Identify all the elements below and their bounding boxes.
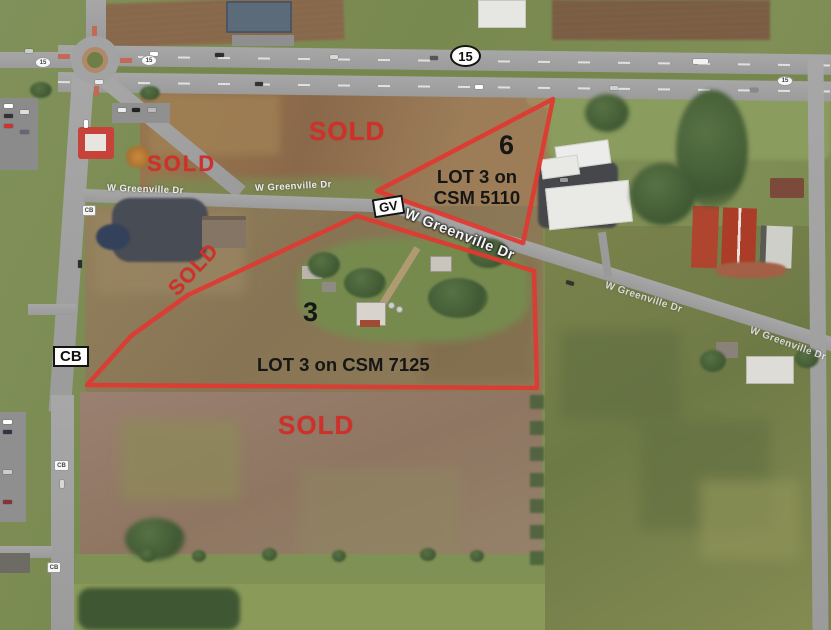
car <box>330 55 338 59</box>
truck <box>693 59 708 64</box>
tree-line-vertical <box>530 395 544 570</box>
splitter-island <box>92 26 97 36</box>
tree-row-dot <box>192 550 206 562</box>
car <box>60 480 64 488</box>
tree-cluster <box>428 278 488 318</box>
splitter-island <box>120 58 132 63</box>
road-west-stub-mid <box>28 304 76 315</box>
car <box>750 88 758 92</box>
shed <box>322 282 336 292</box>
car <box>475 85 483 89</box>
tree-row-dot <box>332 550 346 562</box>
car <box>4 114 13 118</box>
car <box>610 86 618 90</box>
restaurant-roof-center <box>85 134 106 151</box>
field-tilled-top-right <box>552 0 770 40</box>
car <box>25 49 33 53</box>
car <box>3 470 12 474</box>
mini-highway-15-shield: 15 <box>141 55 157 66</box>
car <box>430 56 438 60</box>
tree-cluster <box>140 86 160 100</box>
car <box>3 420 12 424</box>
parcel-6-csm-line1: LOT 3 on <box>421 166 533 187</box>
parcel-3-number: 3 <box>303 297 318 328</box>
car <box>3 430 12 434</box>
highway-15-shield: 15 <box>450 45 481 67</box>
building-bottom-left <box>0 553 30 573</box>
car <box>132 108 140 112</box>
road-cb-lower <box>51 395 74 630</box>
tree-row-dot <box>470 550 484 562</box>
car <box>148 108 156 112</box>
field-right-mottle3 <box>700 480 800 560</box>
tree-mass-bottom-left <box>78 588 240 630</box>
car <box>78 260 82 268</box>
barn-red-2 <box>721 207 757 268</box>
tree-row-dot <box>420 548 436 561</box>
parking-office <box>232 35 294 46</box>
silo <box>396 306 403 313</box>
splitter-island <box>58 54 70 59</box>
parking-lot-top-left <box>0 98 38 170</box>
car <box>255 82 263 86</box>
tree-row-dot <box>262 548 277 561</box>
office-building-blue <box>226 1 292 33</box>
barn-bottom-right <box>746 356 794 384</box>
barn-red-1 <box>691 206 719 269</box>
tree-cluster <box>30 82 52 98</box>
parking-bottom-left <box>0 412 26 522</box>
field-tilled-top <box>91 0 344 48</box>
mini-highway-15-shield: 15 <box>777 76 793 86</box>
silo <box>388 302 395 309</box>
car <box>215 53 224 57</box>
sold-label-bottom: SOLD <box>278 410 354 441</box>
tree-cluster <box>700 350 726 372</box>
barn-farm-red-wall <box>360 320 380 327</box>
field-south-green-patch2 <box>300 468 460 560</box>
car <box>20 110 29 114</box>
tree-cluster <box>630 163 696 225</box>
field-south-green-patch1 <box>120 420 240 500</box>
lane-dashes <box>58 55 831 66</box>
white-building-top <box>478 0 526 28</box>
car <box>3 500 12 504</box>
car <box>4 124 13 128</box>
mini-cb-shield: CB <box>54 460 69 471</box>
roundabout-island <box>87 52 103 68</box>
mini-cb-shield: CB <box>82 205 96 216</box>
cb-route-shield: CB <box>53 346 89 367</box>
parking-strip <box>112 103 170 123</box>
parcel-6-csm-line2: CSM 5110 <box>421 187 533 208</box>
car <box>95 80 103 84</box>
tree-cluster <box>308 252 340 278</box>
car <box>4 104 13 108</box>
farm-house <box>430 256 452 272</box>
dirt-yard-red <box>716 262 786 278</box>
pond <box>96 224 130 250</box>
splitter-island <box>94 86 99 96</box>
car <box>20 130 29 134</box>
car <box>84 120 88 128</box>
parcel-3-csm-label: LOT 3 on CSM 7125 <box>257 354 430 376</box>
field-right-mottle1 <box>560 330 680 420</box>
warehouse-white-c <box>545 180 633 231</box>
tree-cluster <box>585 94 629 132</box>
house-ne <box>770 178 804 198</box>
parcel-6-number: 6 <box>499 130 514 161</box>
mini-cb-shield: CB <box>47 562 61 573</box>
tree-cluster <box>344 268 386 298</box>
mini-highway-15-shield: 15 <box>35 57 51 68</box>
car <box>118 108 126 112</box>
parcel-6-csm-label: LOT 3 on CSM 5110 <box>421 166 533 208</box>
tree-row-dot <box>140 548 156 562</box>
sold-label-left: SOLD <box>147 151 216 177</box>
aerial-parcel-map: W Greenville Dr W Greenville Dr W Greenv… <box>0 0 831 630</box>
car <box>560 178 568 182</box>
sold-label-top: SOLD <box>309 116 385 147</box>
